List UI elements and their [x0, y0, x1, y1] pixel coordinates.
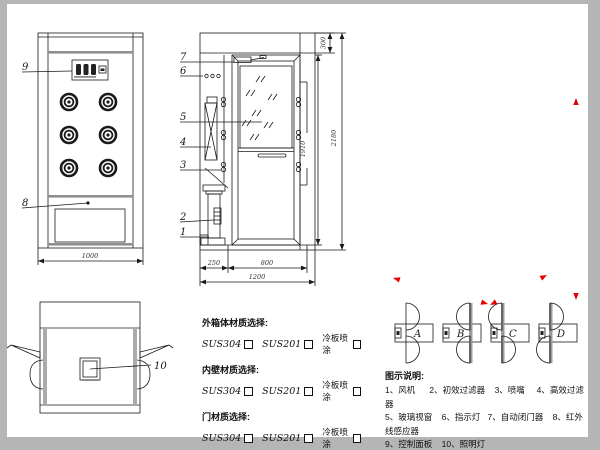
material-group-title: 门材质选择: — [202, 410, 370, 423]
door-option-C: C — [488, 302, 532, 364]
material-option-label: 冷板喷涂 — [322, 379, 350, 403]
svg-text:2180: 2180 — [330, 130, 338, 148]
legend-line-3: 9、控制面板 10、照明灯 — [385, 438, 590, 450]
door-closer-device — [234, 56, 266, 63]
label-9-control-panel: 9 — [22, 62, 72, 73]
svg-text:250: 250 — [207, 259, 220, 267]
material-checkbox[interactable] — [304, 434, 313, 443]
material-checkbox[interactable] — [353, 340, 361, 349]
red-indicator-light — [494, 57, 501, 64]
material-checkbox[interactable] — [304, 387, 313, 396]
material-checkbox[interactable] — [353, 387, 361, 396]
material-group-door: 门材质选择: SUS304 SUS201 冷板喷涂 — [202, 410, 370, 450]
svg-text:6: 6 — [180, 66, 187, 77]
air-return-grille — [55, 209, 125, 242]
material-group-title: 外箱体材质选择: — [202, 316, 370, 329]
legend-line-1: 1、风机 2、初效过滤器 3、喷嘴 4、高效过滤器 — [385, 384, 590, 411]
internal-nozzles — [425, 113, 463, 171]
svg-text:1910: 1910 — [299, 141, 307, 158]
material-option-label: SUS304 — [202, 433, 241, 444]
door-swing-arms — [7, 345, 173, 389]
material-option-label: SUS201 — [262, 386, 301, 397]
plan-outline — [40, 302, 140, 413]
svg-text:3: 3 — [180, 160, 186, 171]
cabinet-body — [396, 28, 543, 300]
emergency-button — [495, 81, 503, 89]
fan-pedestal-symbol — [201, 185, 225, 245]
svg-text:2180mm: 2180mm — [547, 146, 566, 214]
svg-text:5: 5 — [180, 112, 186, 123]
svg-text:7: 7 — [180, 52, 187, 63]
side-view-drawing: 7 6 5 4 3 2 1 300 1910 2180 2 — [172, 18, 362, 313]
label-8-sensor: 8 — [22, 198, 90, 209]
svg-text:1000: 1000 — [82, 252, 99, 260]
material-checkbox[interactable] — [244, 387, 253, 396]
material-group-inner-wall: 内壁材质选择: SUS304 SUS201 冷板喷涂 — [202, 363, 370, 403]
glass-hatch-marks — [242, 76, 277, 140]
side-nozzles — [221, 97, 300, 171]
dim-front-width: 1000 — [38, 248, 143, 265]
material-selection: 外箱体材质选择: SUS304 SUS201 冷板喷涂 内壁材质选择: SUS3… — [202, 316, 370, 450]
material-option-label: 冷板喷涂 — [322, 426, 350, 450]
door-handle-photo — [428, 197, 462, 204]
side-view-dimensions: 300 1910 2180 250 800 1200 — [200, 33, 346, 286]
door-handle — [258, 154, 286, 157]
svg-text:B: B — [456, 329, 464, 340]
nozzle-grid — [61, 94, 116, 176]
cabinet-door — [405, 50, 480, 286]
svg-text:D: D — [556, 329, 565, 340]
legend-title: 图示说明: — [385, 369, 590, 382]
svg-text:1: 1 — [180, 227, 186, 238]
material-option-label: SUS201 — [262, 339, 301, 350]
door-swing-options: A B C D — [388, 302, 580, 364]
svg-text:800: 800 — [261, 259, 273, 267]
material-option-label: SUS304 — [202, 339, 241, 350]
svg-text:10: 10 — [154, 361, 167, 372]
front-cabinet-outline — [38, 33, 143, 248]
legend-line-2: 5、玻璃视窗 6、指示灯 7、自动闭门器 8、红外线感应器 — [385, 411, 590, 438]
material-option-label: SUS304 — [202, 386, 241, 397]
svg-text:300: 300 — [320, 37, 328, 49]
material-checkbox[interactable] — [244, 340, 253, 349]
material-checkbox[interactable] — [244, 434, 253, 443]
door-closer-photo — [405, 56, 433, 68]
material-option-label: 冷板喷涂 — [322, 332, 350, 356]
door-glass — [412, 59, 474, 190]
label-10-lamp: 10 — [90, 361, 167, 372]
material-checkbox[interactable] — [353, 434, 361, 443]
svg-text:4: 4 — [179, 137, 186, 148]
side-view-labels: 7 6 5 4 3 2 1 — [179, 52, 262, 238]
door-option-B: B — [440, 302, 484, 364]
svg-text:1200: 1200 — [249, 273, 266, 281]
photo-dimensions: 2180mm 1200mm 1000mm — [393, 46, 583, 308]
indicator-lights-symbol — [205, 74, 220, 77]
hepa-filter-symbol — [205, 97, 228, 188]
door-section — [232, 55, 300, 245]
door-option-D: D — [536, 302, 580, 364]
material-option-label: SUS201 — [262, 433, 301, 444]
door-option-A: A — [392, 302, 436, 364]
control-panel — [72, 60, 108, 80]
glass-window — [240, 66, 292, 148]
legend: 图示说明: 1、风机 2、初效过滤器 3、喷嘴 4、高效过滤器 5、玻璃视窗 6… — [385, 369, 590, 450]
green-indicator-light — [505, 54, 512, 61]
air-shower-spec-sheet: 9 8 1000 — [0, 0, 600, 450]
svg-text:A: A — [413, 329, 421, 340]
material-checkbox[interactable] — [304, 340, 313, 349]
product-photo: 2180mm 1200mm 1000mm — [380, 8, 590, 308]
top-view-drawing: 10 — [5, 295, 185, 425]
indicator-lights-photo — [494, 54, 512, 89]
material-group-title: 内壁材质选择: — [202, 363, 370, 376]
svg-text:9: 9 — [22, 62, 29, 73]
svg-text:C: C — [509, 329, 517, 340]
material-group-outer-box: 外箱体材质选择: SUS304 SUS201 冷板喷涂 — [202, 316, 370, 356]
front-view-drawing: 9 8 1000 — [10, 25, 175, 295]
